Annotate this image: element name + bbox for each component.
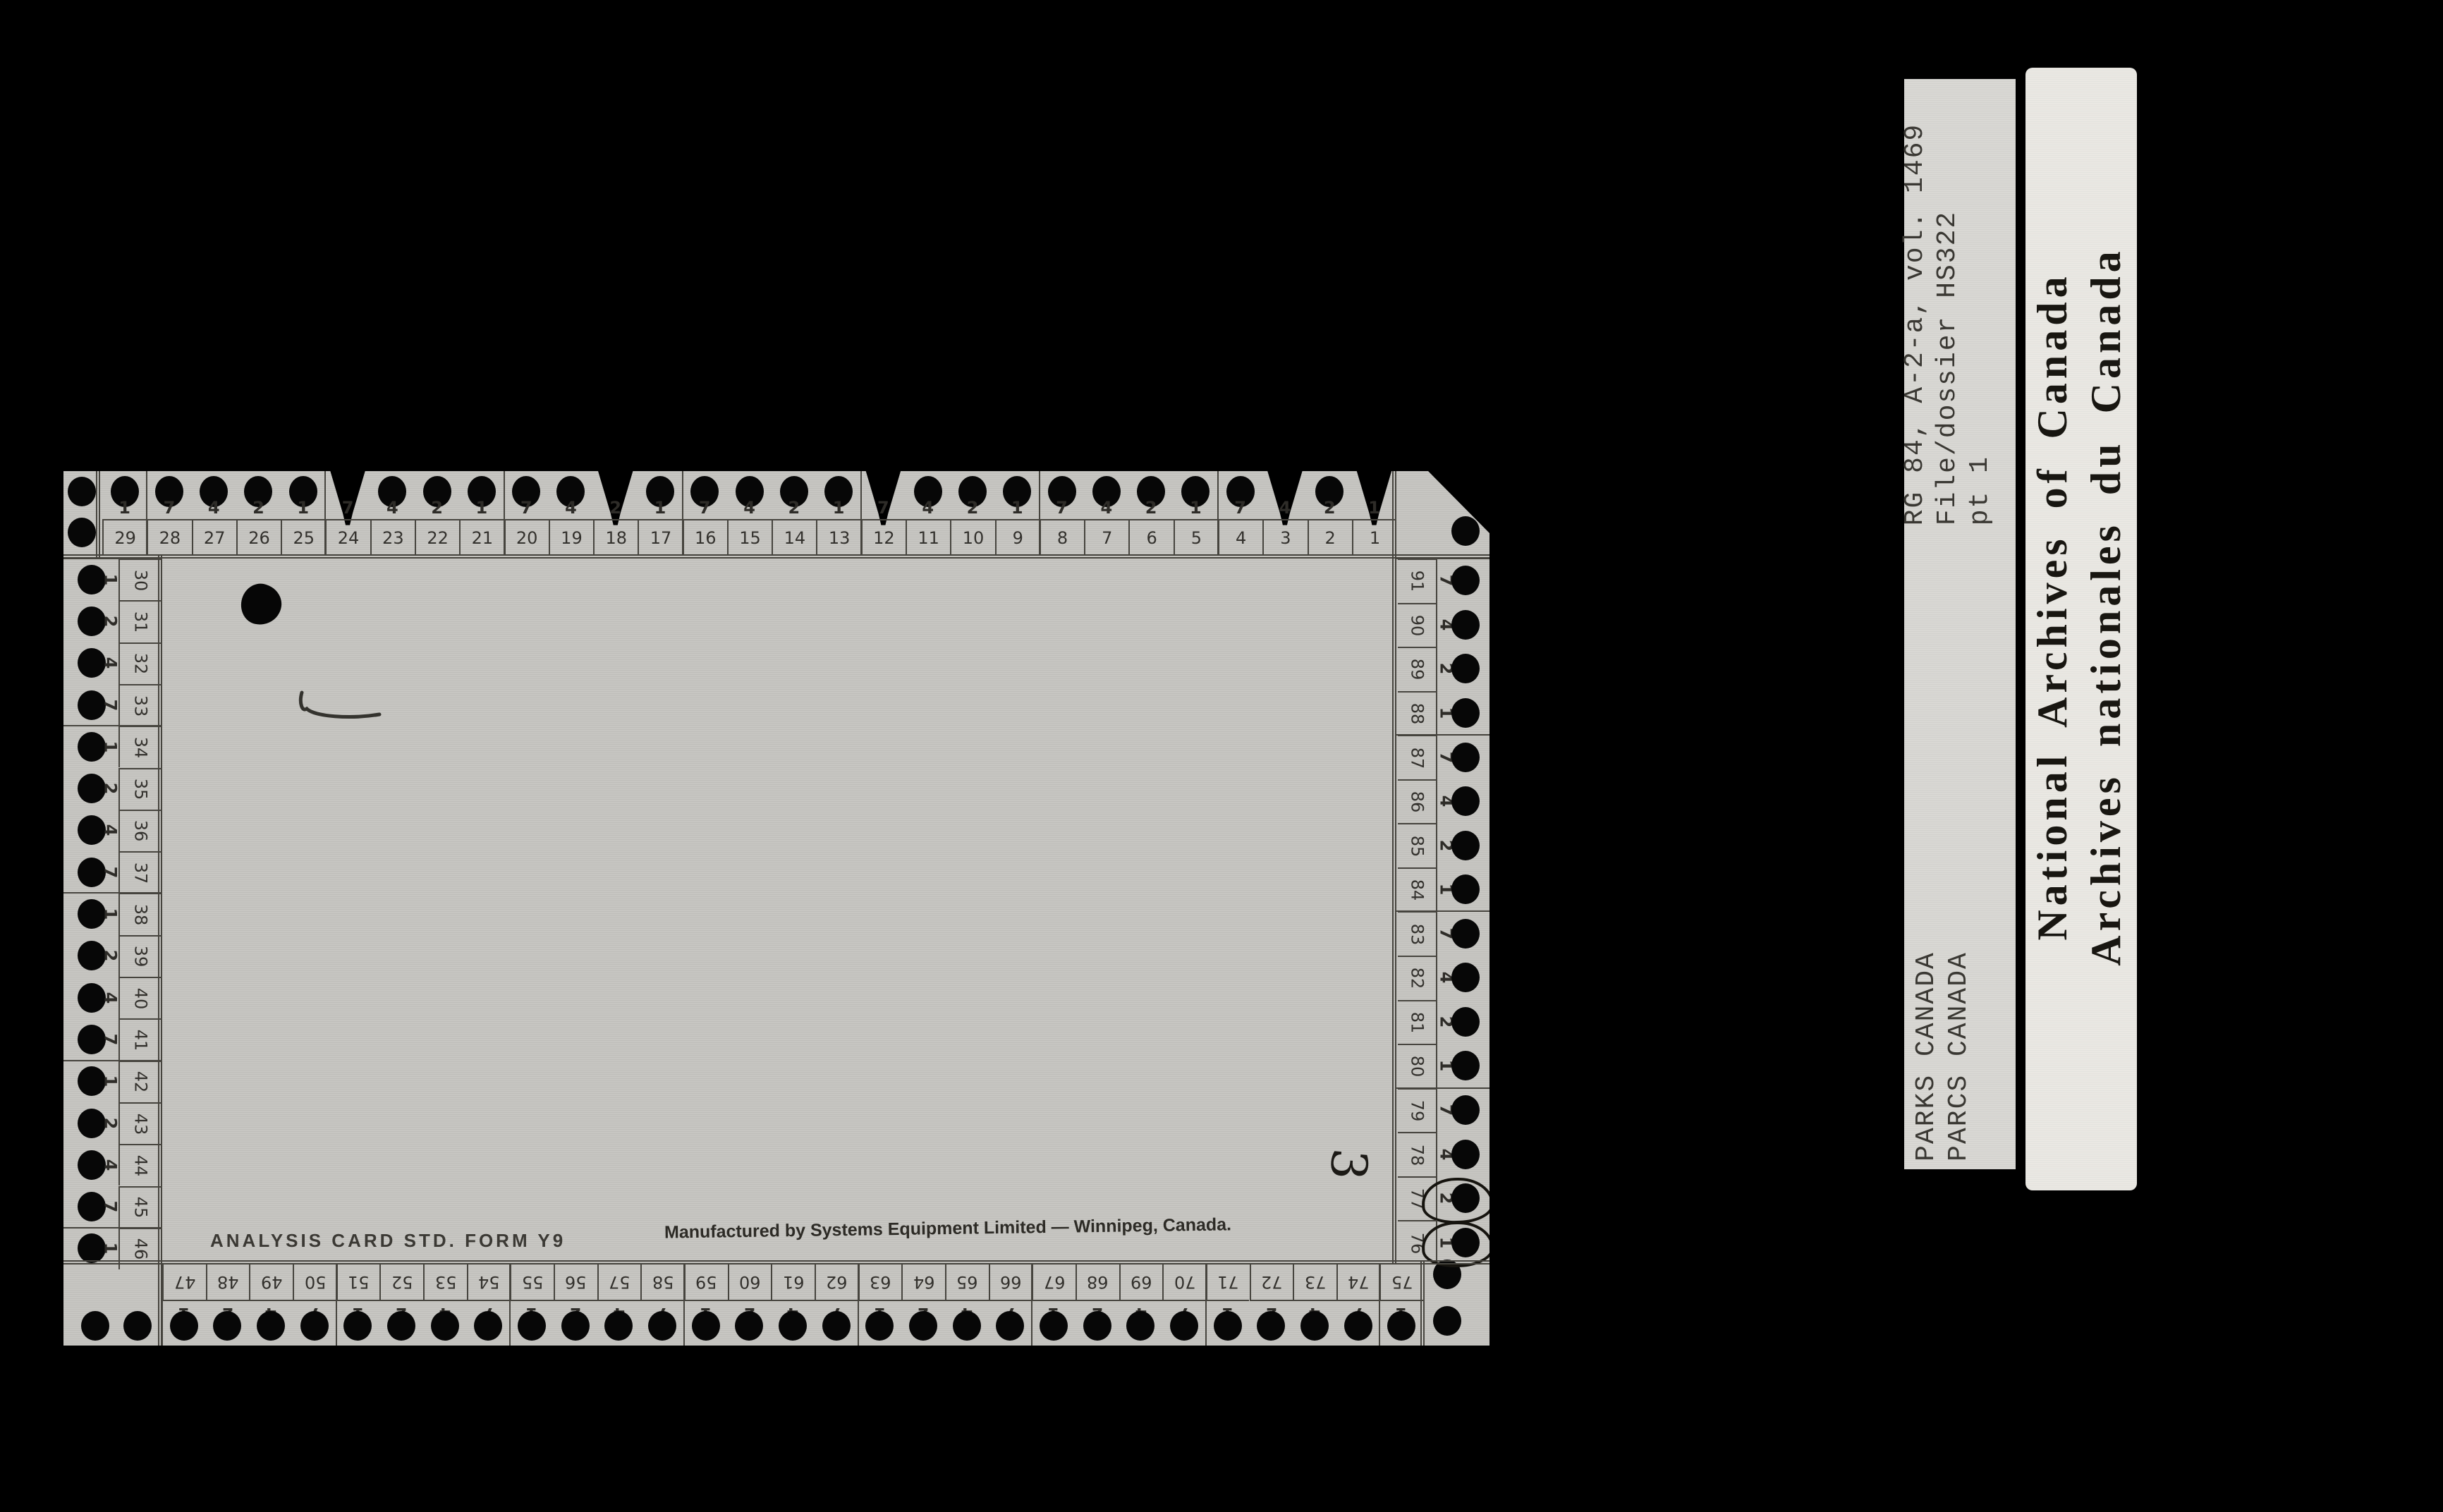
punch-hole <box>1214 1311 1242 1341</box>
bottom-col-53: 534 <box>423 1264 467 1346</box>
column-number-cell: 72 <box>1250 1264 1293 1301</box>
rule-corner-right <box>1420 1260 1425 1346</box>
rule-bottom <box>63 1260 1489 1264</box>
bottom-col-62: 627 <box>815 1264 858 1346</box>
bottom-col-66: 667 <box>989 1264 1032 1346</box>
column-number: 1 <box>1370 528 1380 548</box>
column-number: 55 <box>522 1272 544 1292</box>
column-number-cell: 69 <box>1119 1264 1163 1301</box>
parks-line2: PARCS CANADA <box>1943 951 1975 1162</box>
column-number-cell: 16 <box>683 519 727 556</box>
row-number: 31 <box>130 611 150 633</box>
bottom-col-58: 587 <box>640 1264 684 1346</box>
row-number: 79 <box>1407 1100 1427 1122</box>
column-number: 28 <box>159 528 181 548</box>
punch-hole <box>1344 1311 1372 1341</box>
column-number-cell: 57 <box>597 1264 641 1301</box>
row-number-cell: 36 <box>118 810 161 851</box>
column-number: 3 <box>1280 528 1291 548</box>
row-number: 39 <box>130 946 150 968</box>
column-number: 68 <box>1087 1272 1109 1292</box>
row-number: 88 <box>1407 703 1427 725</box>
column-number: 19 <box>561 528 583 548</box>
row-number: 36 <box>130 820 150 842</box>
punch-hole <box>257 1311 285 1341</box>
column-number-cell: 4 <box>1218 519 1262 556</box>
column-number-cell: 25 <box>281 519 325 556</box>
top-col-12: 712 <box>861 471 906 559</box>
row-number-cell: 40 <box>118 977 161 1018</box>
handwritten-three: 3 <box>1318 1146 1379 1183</box>
punch-hole <box>1451 919 1480 949</box>
archive-reference-label: RG 84, A-2-a, vol. 1469 File/dossier HS3… <box>1904 79 2016 1169</box>
pen-mark <box>295 690 391 724</box>
right-row-82: 824 <box>1396 956 1489 1000</box>
top-col-15: 415 <box>727 471 772 559</box>
column-number: 4 <box>1236 528 1246 548</box>
right-row-85: 852 <box>1396 823 1489 867</box>
scale-digit: 1 <box>638 498 682 518</box>
row-number-cell: 41 <box>118 1018 161 1060</box>
column-number: 9 <box>1013 528 1023 548</box>
left-row-32: 432 <box>63 642 161 684</box>
punch-hole <box>1040 1311 1068 1341</box>
row-number-cell: 88 <box>1398 691 1437 736</box>
scale-digit: 4 <box>100 657 120 669</box>
row-number-cell: 45 <box>118 1186 161 1228</box>
column-number-cell: 50 <box>293 1264 336 1301</box>
punch-hole <box>735 1311 763 1341</box>
bottom-col-75: 751 <box>1379 1264 1423 1346</box>
right-row-79: 797 <box>1396 1088 1489 1133</box>
column-number-cell: 67 <box>1032 1264 1076 1301</box>
right-row-83: 837 <box>1396 911 1489 956</box>
row-number-cell: 33 <box>118 684 161 726</box>
column-number-cell: 22 <box>415 519 459 556</box>
row-number: 40 <box>130 987 150 1009</box>
top-col-25: 125 <box>281 471 325 559</box>
scale-digit: 1 <box>816 498 860 518</box>
card-form-title: ANALYSIS CARD STD. FORM Y9 <box>210 1230 566 1252</box>
column-number: 8 <box>1057 528 1068 548</box>
scale-digit: 7 <box>504 498 549 518</box>
bottom-col-64: 642 <box>901 1264 945 1346</box>
bottom-col-74: 747 <box>1336 1264 1380 1346</box>
column-number: 50 <box>305 1272 327 1292</box>
scale-digit: 2 <box>100 616 120 628</box>
row-number: 87 <box>1407 747 1427 769</box>
column-number-cell: 60 <box>728 1264 772 1301</box>
scale-digit: 7 <box>861 498 906 518</box>
row-number-cell: 83 <box>1398 911 1437 956</box>
column-number: 57 <box>609 1272 630 1292</box>
column-number-cell: 75 <box>1379 1264 1423 1301</box>
left-row-36: 436 <box>63 810 161 851</box>
punch-hole <box>387 1311 415 1341</box>
row-number: 82 <box>1407 968 1427 989</box>
row-number-cell: 87 <box>1398 735 1437 779</box>
punch-hole <box>213 1311 241 1341</box>
scale-digit: 4 <box>192 498 236 518</box>
bottom-col-67: 671 <box>1032 1264 1076 1346</box>
column-number: 17 <box>650 528 672 548</box>
punch-hole <box>822 1311 851 1341</box>
scale-digit: 7 <box>147 498 191 518</box>
punch-hole <box>1451 698 1480 728</box>
right-row-86: 864 <box>1396 779 1489 824</box>
column-number-cell: 12 <box>861 519 906 556</box>
row-number-cell: 90 <box>1398 603 1437 647</box>
column-number-cell: 53 <box>423 1264 467 1301</box>
left-row-38: 138 <box>63 893 161 934</box>
column-number: 5 <box>1191 528 1202 548</box>
scale-digit: 7 <box>1040 498 1084 518</box>
bottom-col-48: 482 <box>206 1264 250 1346</box>
scale-digit: 1 <box>100 573 120 585</box>
top-col-13: 113 <box>816 471 860 559</box>
rule-top <box>63 554 1489 559</box>
column-number: 15 <box>739 528 761 548</box>
row-number: 45 <box>130 1197 150 1219</box>
column-number-cell: 68 <box>1076 1264 1119 1301</box>
column-number: 24 <box>338 528 360 548</box>
bottom-col-71: 711 <box>1206 1264 1250 1346</box>
column-number-cell: 73 <box>1293 1264 1336 1301</box>
right-row-81: 812 <box>1396 1000 1489 1044</box>
row-number: 90 <box>1407 615 1427 637</box>
top-col-23: 423 <box>370 471 415 559</box>
right-row-76: 761 <box>1396 1220 1489 1264</box>
natarch-line2: Archives nationales du Canada <box>2079 247 2133 965</box>
row-number-cell: 30 <box>118 559 161 600</box>
column-number: 25 <box>293 528 315 548</box>
scale-digit: 1 <box>100 1243 120 1255</box>
top-col-9: 19 <box>995 471 1040 559</box>
column-number: 60 <box>739 1272 761 1292</box>
right-row-77: 772 <box>1396 1176 1489 1221</box>
scale-digit: 7 <box>325 498 370 518</box>
column-number: 54 <box>478 1272 500 1292</box>
punch-hole <box>909 1311 937 1341</box>
row-number-cell: 42 <box>118 1061 161 1102</box>
top-col-10: 210 <box>950 471 994 559</box>
column-number: 56 <box>565 1272 587 1292</box>
column-number-cell: 70 <box>1162 1264 1206 1301</box>
bottom-col-72: 722 <box>1250 1264 1293 1346</box>
punch-hole <box>1451 743 1480 772</box>
corner-hole <box>123 1311 152 1341</box>
column-number: 11 <box>918 528 939 548</box>
left-row-33: 733 <box>63 684 161 726</box>
scale-digit: 2 <box>236 498 281 518</box>
column-number: 23 <box>382 528 404 548</box>
column-number: 6 <box>1146 528 1157 548</box>
punch-hole <box>1387 1311 1415 1341</box>
archive-ref-line2: File/dossier HS322 <box>1932 123 1964 526</box>
right-row-78: 784 <box>1396 1132 1489 1176</box>
column-number: 21 <box>472 528 494 548</box>
top-col-7: 47 <box>1084 471 1128 559</box>
rule-left <box>158 554 162 1346</box>
bottom-col-60: 602 <box>728 1264 772 1346</box>
column-number-cell: 17 <box>638 519 682 556</box>
scale-digit: 1 <box>1174 498 1218 518</box>
bottom-col-59: 591 <box>684 1264 728 1346</box>
scale-digit: 2 <box>1128 498 1173 518</box>
column-number-cell: 5 <box>1174 519 1218 556</box>
punch-hole <box>604 1311 633 1341</box>
top-col-24: 724 <box>325 471 370 559</box>
column-number-cell: 2 <box>1308 519 1352 556</box>
scale-digit: 2 <box>950 498 994 518</box>
parks-line1: PARKS CANADA <box>1911 951 1943 1162</box>
punch-hole <box>1451 963 1480 992</box>
row-number-cell: 91 <box>1398 559 1437 603</box>
punch-hole <box>1451 1095 1480 1125</box>
column-number-cell: 23 <box>370 519 415 556</box>
column-number-cell: 11 <box>906 519 950 556</box>
punch-hole <box>343 1311 372 1341</box>
column-number: 58 <box>652 1272 674 1292</box>
column-number-cell: 52 <box>379 1264 423 1301</box>
punch-hole <box>474 1311 502 1341</box>
right-row-89: 892 <box>1396 647 1489 691</box>
scale-digit: 2 <box>415 498 459 518</box>
column-number: 70 <box>1174 1272 1196 1292</box>
top-col-8: 78 <box>1040 471 1084 559</box>
column-number: 22 <box>427 528 449 548</box>
scale-digit: 4 <box>370 498 415 518</box>
left-row-44: 444 <box>63 1144 161 1185</box>
column-number: 71 <box>1217 1272 1239 1292</box>
column-number: 12 <box>873 528 895 548</box>
row-number: 46 <box>130 1238 150 1260</box>
scale-digit: 4 <box>549 498 593 518</box>
row-number: 78 <box>1407 1144 1427 1166</box>
punch-hole <box>953 1311 981 1341</box>
right-row-80: 801 <box>1396 1044 1489 1088</box>
right-row-88: 881 <box>1396 691 1489 736</box>
scale-digit: 4 <box>1084 498 1128 518</box>
column-number-cell: 59 <box>684 1264 728 1301</box>
column-number: 75 <box>1391 1272 1413 1292</box>
column-number: 29 <box>114 528 136 548</box>
row-number: 42 <box>130 1071 150 1093</box>
scale-digit: 1 <box>1352 498 1396 518</box>
column-number: 67 <box>1044 1272 1066 1292</box>
column-number-cell: 63 <box>858 1264 902 1301</box>
column-number: 62 <box>826 1272 848 1292</box>
column-number: 48 <box>217 1272 239 1292</box>
column-number-cell: 62 <box>815 1264 858 1301</box>
column-number: 20 <box>516 528 538 548</box>
scale-digit: 7 <box>1218 498 1262 518</box>
column-number-cell: 65 <box>945 1264 989 1301</box>
punch-hole <box>1451 654 1480 683</box>
column-number-cell: 64 <box>901 1264 945 1301</box>
corner-hole <box>68 518 96 547</box>
punch-hole <box>996 1311 1024 1341</box>
scale-digit: 1 <box>281 498 325 518</box>
column-number: 16 <box>695 528 717 548</box>
rule-right <box>1392 471 1396 1264</box>
column-number: 47 <box>174 1272 196 1292</box>
row-number: 89 <box>1407 659 1427 681</box>
top-col-5: 15 <box>1174 471 1218 559</box>
row-number-cell: 31 <box>118 600 161 642</box>
column-number: 66 <box>1000 1272 1022 1292</box>
punch-hole <box>1126 1311 1155 1341</box>
punch-hole <box>1451 786 1480 816</box>
column-number: 10 <box>963 528 985 548</box>
column-number: 61 <box>783 1272 805 1292</box>
corner-hole <box>81 1311 109 1341</box>
left-row-40: 440 <box>63 977 161 1018</box>
row-number: 41 <box>130 1030 150 1051</box>
archive-reference-text: RG 84, A-2-a, vol. 1469 File/dossier HS3… <box>1899 123 1997 526</box>
right-row-91: 917 <box>1396 559 1489 603</box>
column-number: 73 <box>1305 1272 1327 1292</box>
row-number-cell: 86 <box>1398 779 1437 824</box>
punch-hole <box>1451 831 1480 860</box>
punch-hole <box>518 1311 546 1341</box>
top-col-26: 226 <box>236 471 281 559</box>
row-number-cell: 43 <box>118 1102 161 1144</box>
scan-background: 1297284272261257244232221217204192181177… <box>0 0 2443 1512</box>
punch-hole <box>561 1311 590 1341</box>
punch-hole <box>431 1311 459 1341</box>
row-number-cell: 84 <box>1398 867 1437 912</box>
scale-digit: 2 <box>772 498 816 518</box>
column-number-cell: 15 <box>727 519 772 556</box>
right-row-87: 877 <box>1396 735 1489 779</box>
row-number: 43 <box>130 1113 150 1135</box>
bottom-col-70: 707 <box>1162 1264 1206 1346</box>
row-number-cell: 44 <box>118 1144 161 1185</box>
row-number-cell: 80 <box>1398 1044 1437 1088</box>
punched-hole <box>238 580 286 629</box>
scale-digit: 4 <box>100 992 120 1004</box>
scale-digit: 7 <box>683 498 727 518</box>
archive-ref-line1: RG 84, A-2-a, vol. 1469 <box>1899 123 1932 526</box>
row-number: 35 <box>130 779 150 800</box>
scale-digit: 1 <box>995 498 1040 518</box>
scale-digit: 1 <box>100 740 120 752</box>
punch-hole <box>1451 566 1480 595</box>
row-number-cell: 38 <box>118 893 161 934</box>
top-col-27: 427 <box>192 471 236 559</box>
column-number: 53 <box>435 1272 457 1292</box>
row-number-cell: 81 <box>1398 1000 1437 1044</box>
national-archives-text: National Archives of Canada Archives nat… <box>2025 247 2133 965</box>
manufacturer-text: Manufactured by Systems Equipment Limite… <box>664 1214 1231 1243</box>
column-number-cell: 49 <box>249 1264 293 1301</box>
row-number-cell: 34 <box>118 726 161 767</box>
column-number: 69 <box>1131 1272 1152 1292</box>
punch-hole <box>1451 874 1480 904</box>
column-number-cell: 1 <box>1352 519 1396 556</box>
column-number: 59 <box>695 1272 717 1292</box>
column-number: 64 <box>913 1272 935 1292</box>
column-number: 51 <box>348 1272 370 1292</box>
top-col-17: 117 <box>638 471 682 559</box>
scale-digit: 1 <box>100 908 120 920</box>
top-col-28: 728 <box>147 471 191 559</box>
archive-ref-line3: pt 1 <box>1964 123 1997 526</box>
punch-hole <box>170 1311 198 1341</box>
punch-hole <box>1451 1007 1480 1037</box>
row-number: 30 <box>130 569 150 591</box>
scale-digit: 4 <box>100 824 120 836</box>
scale-digit: 4 <box>1262 498 1307 518</box>
top-col-22: 222 <box>415 471 459 559</box>
column-number-cell: 24 <box>325 519 370 556</box>
left-row-42: 142 <box>63 1061 161 1102</box>
bottom-col-61: 614 <box>771 1264 815 1346</box>
corner-hole <box>1451 516 1480 546</box>
row-number-cell: 39 <box>118 935 161 977</box>
column-number-cell: 74 <box>1336 1264 1380 1301</box>
left-row-37: 737 <box>63 851 161 893</box>
column-number-cell: 10 <box>950 519 994 556</box>
punch-hole <box>1451 1051 1480 1080</box>
bottom-col-55: 551 <box>510 1264 554 1346</box>
analysis-card: 1297284272261257244232221217204192181177… <box>63 471 1489 1346</box>
column-number: 7 <box>1102 528 1112 548</box>
row-number-cell: 89 <box>1398 647 1437 691</box>
left-row-30: 130 <box>63 559 161 600</box>
row-number-cell: 79 <box>1398 1088 1437 1133</box>
column-number-cell: 6 <box>1128 519 1173 556</box>
bottom-col-50: 507 <box>293 1264 336 1346</box>
row-number: 84 <box>1407 879 1427 901</box>
column-number-cell: 71 <box>1206 1264 1250 1301</box>
column-number-cell: 21 <box>459 519 504 556</box>
column-number: 14 <box>784 528 806 548</box>
column-number-cell: 29 <box>102 519 147 556</box>
row-number-cell: 37 <box>118 851 161 893</box>
top-col-4: 74 <box>1218 471 1262 559</box>
column-number: 18 <box>605 528 627 548</box>
scale-digit: 4 <box>906 498 950 518</box>
scale-digit: 2 <box>1308 498 1352 518</box>
column-number-cell: 47 <box>162 1264 206 1301</box>
bottom-col-73: 734 <box>1293 1264 1336 1346</box>
left-row-39: 239 <box>63 935 161 977</box>
row-number: 44 <box>130 1155 150 1177</box>
left-row-31: 231 <box>63 600 161 642</box>
column-number-cell: 13 <box>816 519 860 556</box>
bottom-col-47: 471 <box>162 1264 206 1346</box>
column-number: 26 <box>248 528 270 548</box>
column-number: 13 <box>829 528 851 548</box>
right-row-90: 904 <box>1396 603 1489 647</box>
scale-digit: 2 <box>100 950 120 962</box>
bottom-col-63: 631 <box>858 1264 902 1346</box>
scale-digit: 4 <box>100 1159 120 1171</box>
left-row-35: 235 <box>63 768 161 810</box>
column-number-cell: 9 <box>995 519 1040 556</box>
column-number-cell: 54 <box>467 1264 511 1301</box>
column-number-cell: 3 <box>1262 519 1307 556</box>
punch-hole <box>1300 1311 1329 1341</box>
punch-hole <box>865 1311 894 1341</box>
scale-digit: 1 <box>102 498 147 518</box>
column-number-cell: 7 <box>1084 519 1128 556</box>
left-row-43: 243 <box>63 1102 161 1144</box>
rule-corner-left <box>96 471 100 557</box>
row-number: 37 <box>130 862 150 884</box>
